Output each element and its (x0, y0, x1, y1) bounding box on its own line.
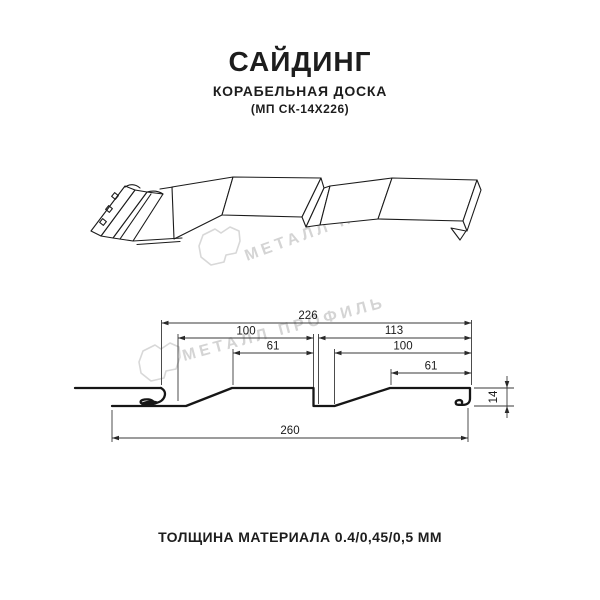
far-edge-line (160, 187, 173, 189)
right-hem-flap (451, 228, 466, 240)
dim-label-260: 260 (280, 425, 299, 437)
watermark-text: МЕТАЛЛ ПРОФИЛЬ (181, 294, 388, 365)
dim-label-100-left: 100 (236, 326, 255, 338)
metal-profil-logo-icon (199, 227, 240, 265)
metal-profil-logo-icon (139, 343, 180, 381)
thickness-note: ТОЛЩИНА МАТЕРИАЛА 0.4/0,45/0,5 ММ (0, 529, 600, 545)
dim-label-113: 113 (385, 325, 403, 337)
dim-label-100-right: 100 (393, 341, 412, 353)
dim-label-61-right: 61 (425, 361, 438, 373)
section-outline (112, 388, 470, 406)
dim-panel2-inner: 100 (335, 341, 472, 356)
dim-panel2-flat: 61 (391, 361, 472, 376)
datasheet-page: САЙДИНГ КОРАБЕЛЬНАЯ ДОСКА (МП СК-14Х226)… (0, 0, 600, 600)
bottom-hem-lines (133, 238, 182, 245)
dim-panel2-width: 113 (319, 325, 472, 340)
dim-total-width: 260 (112, 425, 468, 440)
dim-profile-depth: 14 (488, 376, 509, 418)
technical-drawing: МЕТАЛЛ ПРОФИЛЬ МЕТАЛЛ ПРОФИЛЬ (0, 0, 600, 600)
dim-label-14: 14 (488, 390, 500, 403)
top-panel2-face (378, 178, 477, 221)
dim-label-61-left: 61 (267, 341, 280, 353)
dim-module-width: 226 (162, 310, 472, 325)
dim-label-226: 226 (298, 310, 317, 322)
